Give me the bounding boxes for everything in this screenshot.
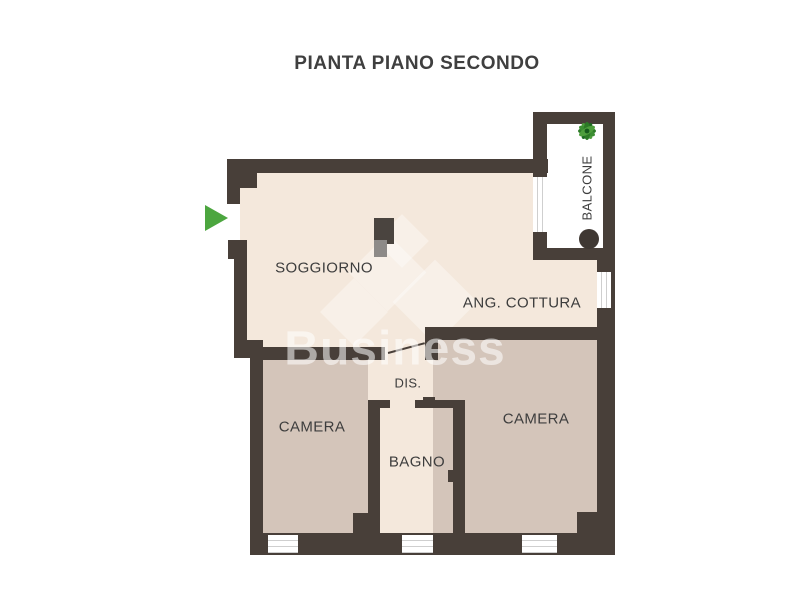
wall-segment [453, 400, 465, 533]
label-soggiorno: SOGGIORNO [275, 260, 373, 277]
wall-segment [250, 352, 263, 555]
column-shading [374, 240, 387, 257]
window [402, 535, 433, 553]
window [522, 535, 557, 553]
label-bagno: BAGNO [389, 454, 445, 471]
wall-segment [228, 240, 234, 259]
label-camera-left: CAMERA [279, 419, 346, 436]
wall-segment-balcony [533, 232, 547, 260]
label-dis: DIS. [395, 376, 422, 391]
page-title: PIANTA PIANO SECONDO [294, 53, 539, 75]
wall-segment-balcony [547, 248, 615, 260]
window [268, 535, 298, 553]
floor-plan-page: PIANTA PIANO SECONDO [0, 0, 800, 600]
balcony-marker-icon [579, 229, 599, 249]
wall-segment [227, 159, 548, 173]
balcony-door-window [533, 177, 547, 232]
entrance-arrow-icon [205, 205, 228, 231]
watermark-text: Business [284, 322, 505, 377]
plant-icon [569, 112, 605, 148]
doorway-dis-bagno [390, 400, 415, 408]
room-camera-left-floor [263, 358, 368, 533]
wall-segment [353, 513, 380, 533]
label-camera-right: CAMERA [503, 411, 570, 428]
label-ang-cottura: ANG. COTTURA [463, 295, 581, 312]
wall-segment [448, 470, 453, 482]
wall-segment [227, 159, 240, 204]
label-balcone: BALCONE [580, 156, 595, 221]
entrance-door-opening [227, 204, 240, 240]
wall-segment-balcony [533, 112, 547, 177]
wall-segment [234, 240, 247, 352]
window [597, 272, 611, 308]
wall-segment [240, 173, 257, 188]
